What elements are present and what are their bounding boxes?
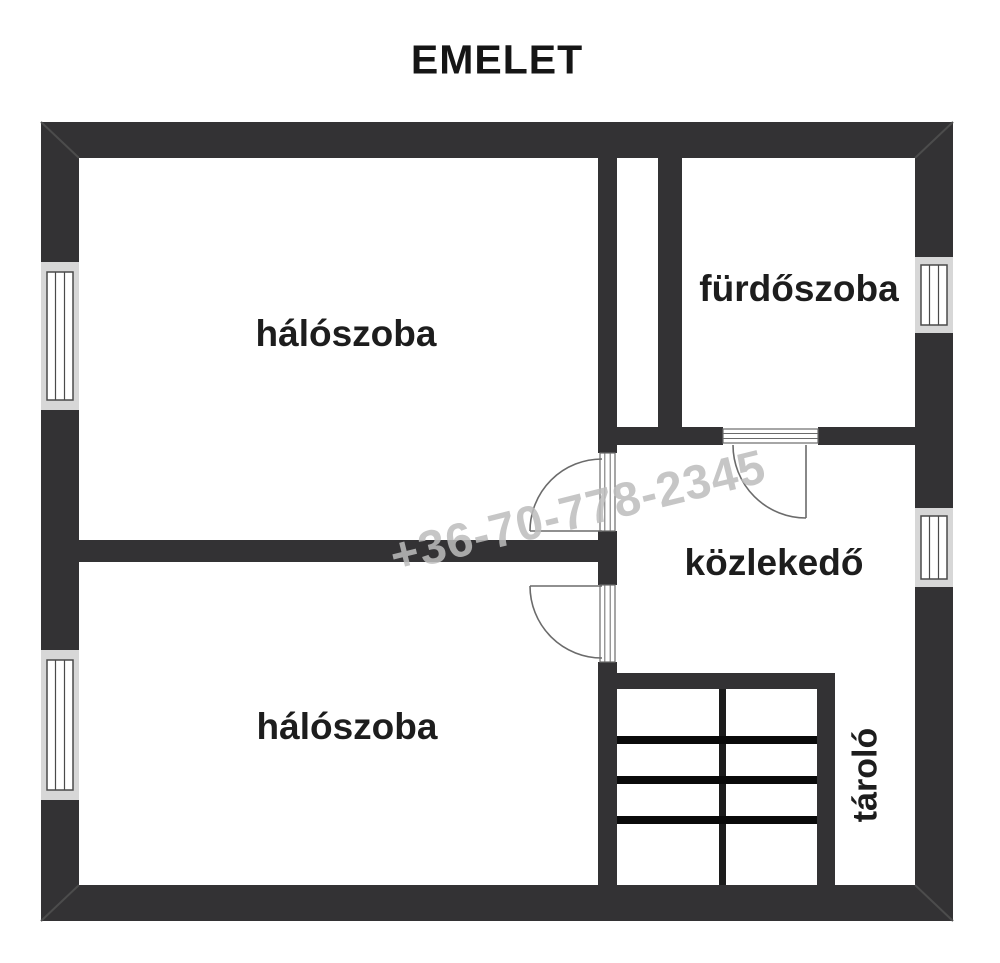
staircase xyxy=(617,689,817,885)
room-label-storage: tároló xyxy=(847,728,886,822)
stair-tread xyxy=(617,736,817,744)
door-swing-arc xyxy=(530,586,602,658)
door-jamb xyxy=(600,585,615,662)
window-bedroom-upper xyxy=(41,262,79,410)
room-label-bedroom-upper: hálószoba xyxy=(256,313,437,355)
stair-center-divider xyxy=(719,689,726,885)
room-label-bathroom: fürdőszoba xyxy=(699,268,898,310)
wall-left xyxy=(41,122,79,921)
window-frame xyxy=(47,660,73,790)
wall-corridor-upper xyxy=(598,158,617,453)
stair-tread xyxy=(617,776,817,784)
window-hallway xyxy=(915,508,953,587)
window-bedroom-lower xyxy=(41,650,79,800)
wall-corridor-lower xyxy=(598,662,617,885)
wall-bathroom-bottom-left xyxy=(598,427,723,445)
window-frame xyxy=(47,272,73,400)
wall-bathroom-bottom-right xyxy=(818,427,915,445)
wall-between-doors xyxy=(598,531,617,585)
floor-plan: EMELET hálószoba fürdőszoba közlekedő há… xyxy=(0,0,1000,963)
page-title: EMELET xyxy=(411,37,583,84)
window-frame xyxy=(921,265,947,325)
room-label-bedroom-lower: hálószoba xyxy=(257,706,438,748)
wall-bathroom-left xyxy=(658,158,682,427)
room-label-hallway: közlekedő xyxy=(685,542,864,584)
window-frame xyxy=(921,516,947,579)
wall-bottom xyxy=(41,885,953,921)
door-bedroom-lower xyxy=(530,585,615,662)
wall-top xyxy=(41,122,953,158)
stair-tread xyxy=(617,816,817,824)
wall-stairs-top xyxy=(598,673,835,689)
wall-stairs-right xyxy=(817,673,835,885)
window-bathroom xyxy=(915,257,953,333)
door-jamb xyxy=(723,429,818,443)
